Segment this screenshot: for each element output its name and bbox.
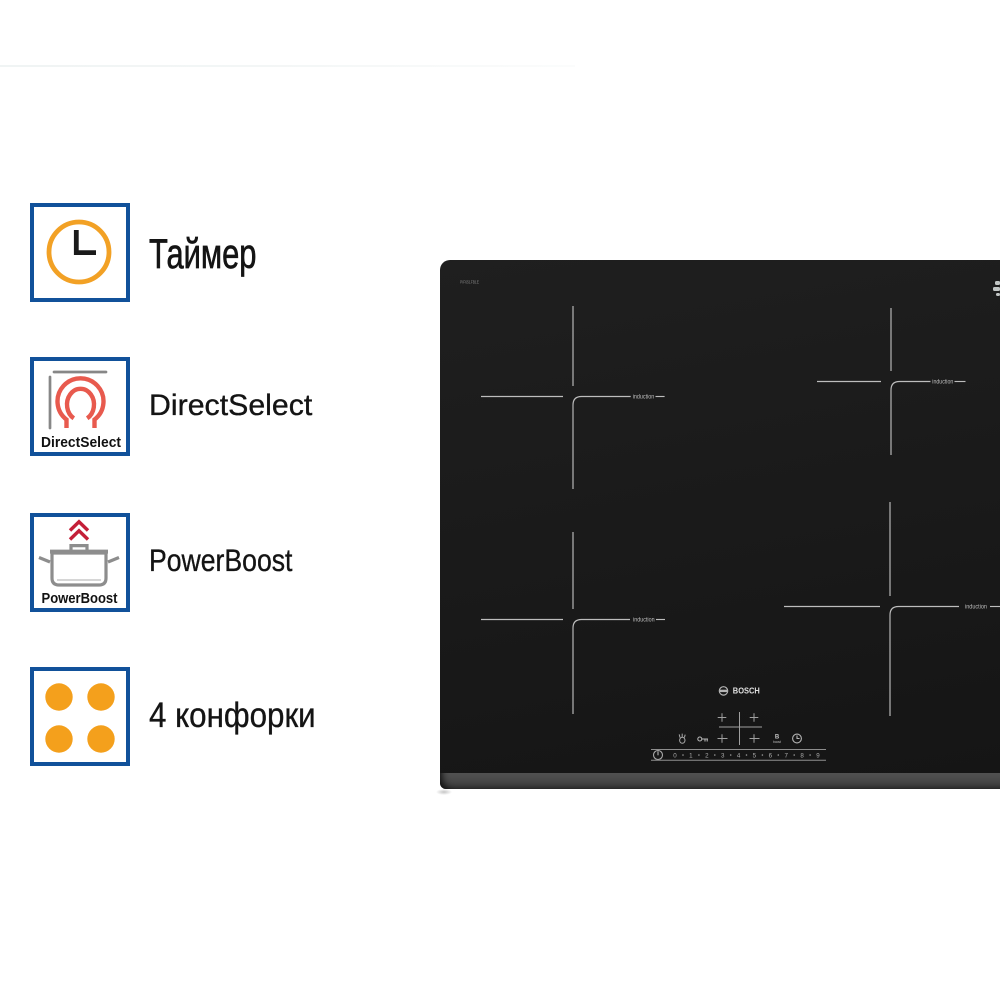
svg-text:6: 6 — [769, 753, 773, 760]
svg-text:BOSCH: BOSCH — [733, 686, 760, 695]
svg-text:induction: induction — [633, 395, 655, 401]
svg-text:1: 1 — [689, 753, 693, 760]
svg-text:9: 9 — [816, 753, 820, 760]
svg-text:2: 2 — [705, 753, 709, 760]
svg-text:8: 8 — [800, 753, 804, 760]
svg-text:3: 3 — [721, 753, 725, 760]
svg-text:induction: induction — [932, 380, 953, 386]
svg-text:PIF651FB1E: PIF651FB1E — [460, 280, 479, 285]
svg-text:4: 4 — [737, 753, 741, 760]
svg-text:7: 7 — [784, 753, 788, 760]
svg-text:boost: boost — [773, 740, 781, 744]
svg-text:0: 0 — [673, 753, 677, 760]
svg-text:induction: induction — [965, 605, 987, 611]
svg-text:DirectSelect: DirectSelect — [41, 435, 121, 451]
svg-text:PowerBoost: PowerBoost — [42, 591, 118, 607]
svg-text:5: 5 — [753, 753, 757, 760]
svg-text:induction: induction — [633, 618, 655, 624]
